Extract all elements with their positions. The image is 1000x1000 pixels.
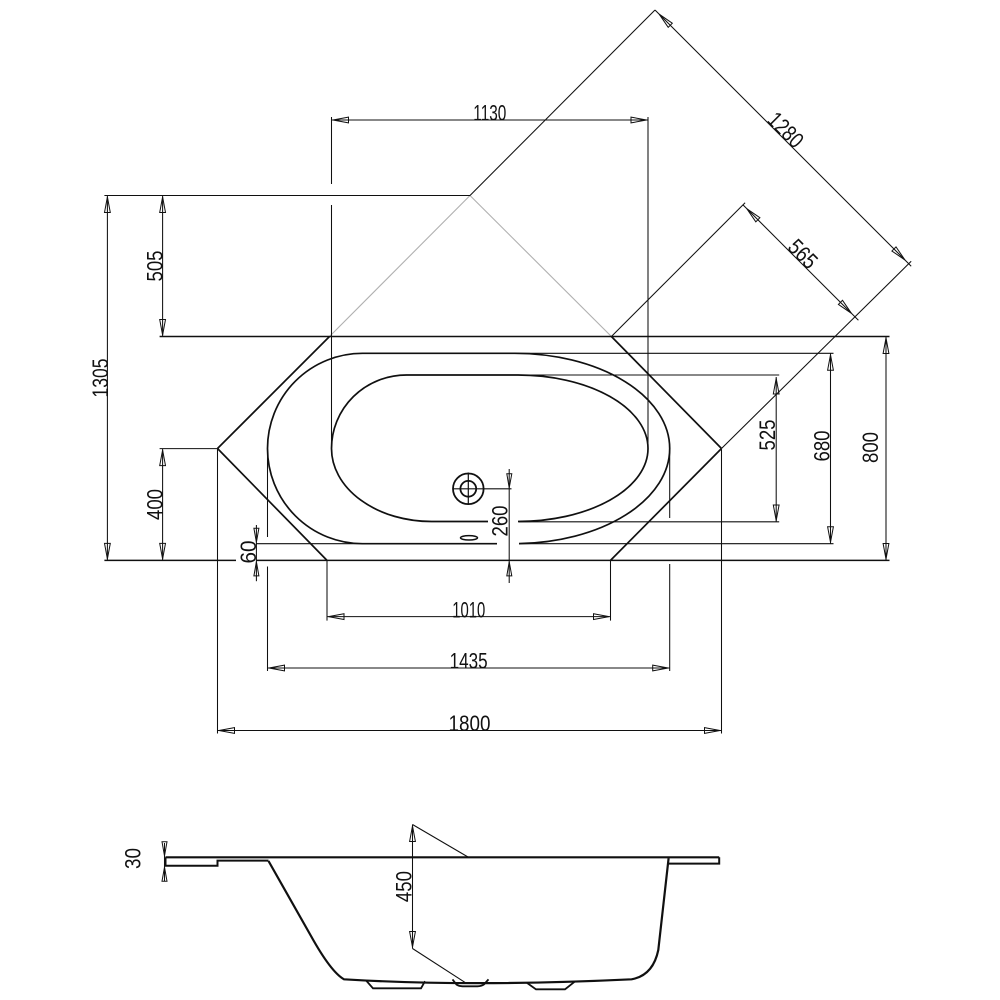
svg-text:505: 505 (142, 251, 167, 282)
svg-text:400: 400 (142, 489, 167, 520)
svg-text:1280: 1280 (763, 107, 809, 153)
svg-text:30: 30 (121, 848, 146, 869)
svg-text:525: 525 (755, 420, 780, 451)
svg-text:680: 680 (810, 431, 835, 462)
svg-text:565: 565 (783, 234, 823, 274)
svg-text:450: 450 (392, 871, 417, 902)
svg-text:1305: 1305 (88, 359, 113, 398)
svg-text:260: 260 (488, 506, 513, 537)
svg-text:1800: 1800 (449, 711, 491, 736)
svg-text:60: 60 (236, 541, 261, 564)
svg-text:1010: 1010 (452, 597, 485, 622)
svg-text:1435: 1435 (450, 649, 488, 674)
svg-text:1130: 1130 (473, 101, 506, 126)
svg-text:800: 800 (858, 432, 883, 463)
